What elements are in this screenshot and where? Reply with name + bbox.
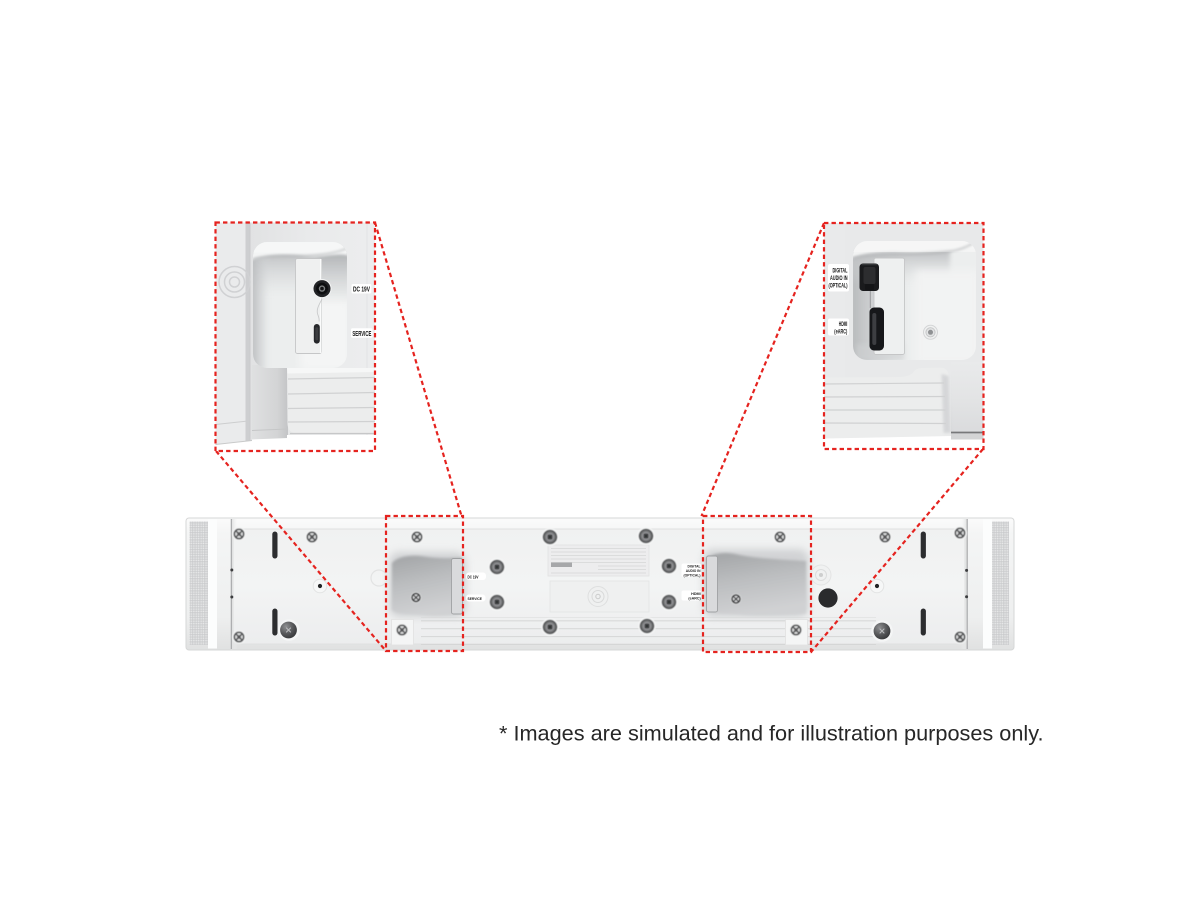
svg-text:(eARC): (eARC) [834, 329, 847, 336]
svg-text:SERVICE: SERVICE [352, 329, 371, 338]
svg-text:(OPTICAL): (OPTICAL) [829, 282, 848, 289]
svg-text:DIGITAL: DIGITAL [833, 267, 848, 274]
svg-text:AUDIO IN: AUDIO IN [830, 275, 848, 282]
svg-text:DC 19V: DC 19V [468, 574, 479, 579]
svg-text:* Images are simulated and for: * Images are simulated and for illustrat… [499, 721, 1043, 746]
svg-text:(eARC): (eARC) [688, 596, 701, 600]
svg-text:HDMI: HDMI [839, 321, 848, 328]
svg-text:(OPTICAL): (OPTICAL) [684, 573, 702, 577]
svg-text:SERVICE: SERVICE [468, 596, 483, 601]
svg-text:DC 19V: DC 19V [353, 285, 370, 294]
